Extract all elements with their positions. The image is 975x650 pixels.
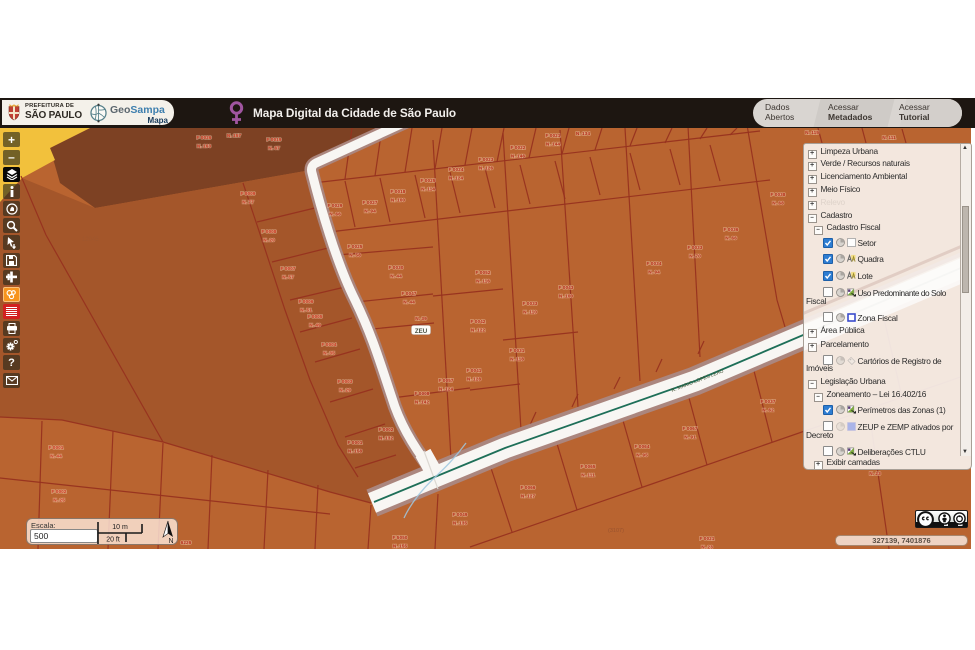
svg-text:N. 77: N. 77 [242,200,254,206]
svg-text:N. 58: N. 58 [349,253,361,259]
svg-text:N. 95: N. 95 [636,453,648,459]
svg-text:F 0005: F 0005 [308,314,323,320]
svg-text:F 0034: F 0034 [647,261,662,267]
svg-text:N. 124: N. 124 [449,176,463,182]
svg-text:F 0042: F 0042 [471,319,486,325]
svg-text:F 0001: F 0001 [49,445,64,451]
svg-text:F 0043: F 0043 [559,285,574,291]
svg-text:N. 25: N. 25 [53,498,65,504]
svg-text:F 0052: F 0052 [476,270,491,276]
svg-text:10 m: 10 m [112,524,128,531]
svg-text:F 0037: F 0037 [761,399,776,405]
svg-text:N. 146: N. 146 [511,154,525,160]
svg-text:N. 116: N. 116 [476,279,490,285]
svg-text:N. 44: N. 44 [403,300,415,306]
svg-text:N. 142: N. 142 [415,400,429,406]
svg-text:N. 157: N. 157 [227,133,241,139]
svg-text:F 0025: F 0025 [348,244,363,250]
svg-text:F 0066: F 0066 [521,485,536,491]
svg-text:F 0027: F 0027 [363,200,378,206]
svg-text:F 0036: F 0036 [724,227,739,233]
svg-text:N. 44: N. 44 [50,454,62,460]
svg-text:N. 23: N. 23 [869,471,881,477]
svg-text:F 0025: F 0025 [421,178,436,184]
svg-text:F 0041: F 0041 [467,368,482,374]
svg-text:N. 70: N. 70 [689,254,701,260]
svg-text:N. 126: N. 126 [479,166,493,172]
svg-text:N. 44: N. 44 [390,274,402,280]
svg-text:N. 51: N. 51 [300,308,312,314]
svg-text:N. 91: N. 91 [684,435,696,441]
svg-text:F 0008: F 0008 [415,391,430,397]
svg-text:N. 144: N. 144 [546,142,560,148]
svg-text:F 0009: F 0009 [241,191,256,197]
svg-text:N. 68: N. 68 [772,201,784,207]
svg-text:F 0007: F 0007 [281,266,296,272]
svg-text:N. 124: N. 124 [439,387,453,393]
svg-text:N. 35: N. 35 [323,351,335,357]
svg-text:N. 114: N. 114 [421,187,435,193]
svg-text:F 0067: F 0067 [683,426,698,432]
svg-text:(3107): (3107) [608,528,624,534]
svg-text:N. 127: N. 127 [521,494,535,500]
svg-text:12045: 12045 [82,237,99,243]
svg-text:N. 94: N. 94 [648,270,660,276]
svg-text:F 0038: F 0038 [771,192,786,198]
svg-text:N. 100: N. 100 [559,294,573,300]
svg-text:N. 111: N. 111 [882,135,896,141]
svg-text:F 0064: F 0064 [635,444,650,450]
svg-text:6226: 6226 [181,540,192,546]
svg-text:N. 111: N. 111 [581,473,595,479]
svg-text:N. 128: N. 128 [467,377,481,383]
svg-text:N. 132: N. 132 [379,436,393,442]
svg-text:F 0029: F 0029 [328,203,343,209]
svg-text:F 0057: F 0057 [439,378,454,384]
svg-text:N. 158: N. 158 [348,449,362,455]
svg-text:N. 23: N. 23 [701,545,713,550]
svg-text:ZEU: ZEU [415,328,428,335]
svg-text:N. 118: N. 118 [510,357,524,363]
svg-text:N. 94: N. 94 [364,209,376,215]
svg-text:F 0031: F 0031 [510,348,525,354]
svg-text:N. 29: N. 29 [339,388,351,394]
svg-text:F 0019: F 0019 [267,137,282,143]
svg-text:N. 134: N. 134 [576,131,590,137]
svg-text:F 0022: F 0022 [511,145,526,151]
svg-text:N. 66: N. 66 [329,212,341,218]
svg-text:F 0021: F 0021 [700,536,715,542]
svg-text:F 0065: F 0065 [581,464,596,470]
svg-text:F 0021: F 0021 [546,133,561,139]
svg-text:N. 20: N. 20 [263,238,275,244]
svg-text:F 0006: F 0006 [299,299,314,305]
svg-text:F 0001: F 0001 [348,440,363,446]
svg-text:F 0024: F 0024 [449,167,464,173]
svg-text:N. 62: N. 62 [762,408,774,414]
svg-text:N: N [168,538,173,545]
svg-text:N. 115: N. 115 [805,130,819,136]
svg-text:F 0004: F 0004 [322,342,337,348]
svg-text:F 0033: F 0033 [523,301,538,307]
svg-text:F 0047: F 0047 [402,291,417,297]
svg-text:N. 135: N. 135 [453,521,467,527]
svg-text:N. 39: N. 39 [415,316,427,322]
svg-text:F 0023: F 0023 [479,157,494,163]
svg-text:N. 110: N. 110 [523,310,537,316]
svg-text:F 0002: F 0002 [52,489,67,495]
svg-text:F 0030: F 0030 [389,265,404,271]
svg-text:N. 100: N. 100 [391,198,405,204]
svg-text:N. 49: N. 49 [309,323,321,329]
svg-text:N. 66: N. 66 [725,236,737,242]
svg-text:F 0002: F 0002 [379,427,394,433]
svg-text:F 0033: F 0033 [688,245,703,251]
svg-text:N. 122: N. 122 [471,328,485,334]
svg-text:F 0003: F 0003 [338,379,353,385]
svg-text:20 ft: 20 ft [106,537,120,544]
svg-text:F 5050: F 5050 [393,535,408,541]
svg-text:N. 87: N. 87 [268,146,280,152]
svg-text:F 0008: F 0008 [262,229,277,235]
svg-text:F 0018: F 0018 [391,189,406,195]
svg-text:N. 163: N. 163 [197,144,211,150]
svg-text:F 0049: F 0049 [453,512,468,518]
svg-text:N. 155: N. 155 [393,544,407,550]
svg-text:F 0026: F 0026 [197,135,212,141]
svg-text:N. 57: N. 57 [282,275,294,281]
